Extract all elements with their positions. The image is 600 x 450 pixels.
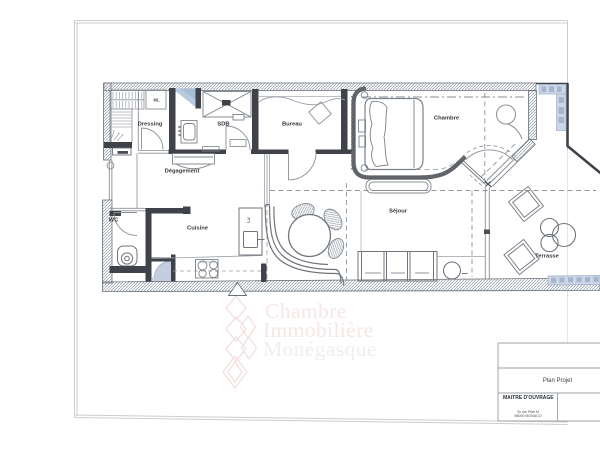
svg-text:MAITRE D'OUVRAGE: MAITRE D'OUVRAGE — [503, 395, 554, 401]
svg-text:Lv: Lv — [246, 217, 252, 223]
svg-text:Terrasse: Terrasse — [535, 254, 560, 260]
svg-text:WC: WC — [109, 218, 119, 224]
svg-text:98000 MONACO: 98000 MONACO — [514, 414, 541, 418]
svg-text:Chambre: Chambre — [434, 116, 460, 122]
svg-text:ML: ML — [153, 98, 159, 103]
svg-text:Séjour: Séjour — [389, 209, 408, 215]
svg-text:Bureau: Bureau — [282, 122, 302, 128]
svg-text:Dressing: Dressing — [138, 122, 163, 128]
svg-text:Dégagement: Dégagement — [165, 169, 200, 175]
svg-text:Cuisine: Cuisine — [187, 226, 209, 232]
svg-text:Plan Projet: Plan Projet — [543, 378, 573, 384]
svg-text:Monégasque: Monégasque — [263, 337, 377, 361]
svg-text:SDB: SDB — [217, 122, 229, 128]
